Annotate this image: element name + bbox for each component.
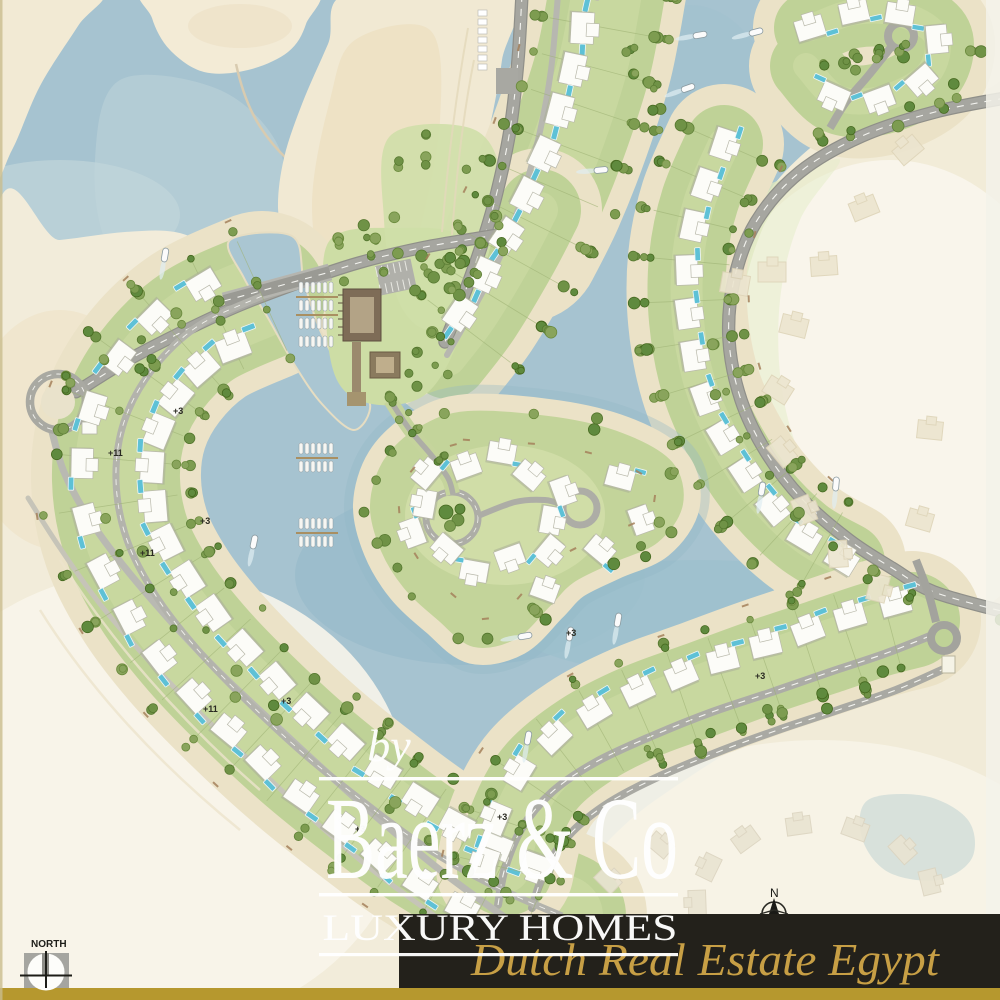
svg-text:NORTH: NORTH	[31, 939, 67, 950]
svg-text:+3: +3	[566, 628, 576, 638]
svg-text:+11: +11	[140, 548, 155, 558]
svg-text:by: by	[367, 720, 411, 771]
svg-text:+11: +11	[203, 704, 218, 714]
svg-text:N: N	[770, 886, 779, 900]
svg-text:+3: +3	[755, 671, 765, 681]
svg-text:+3: +3	[281, 696, 291, 706]
svg-text:+3: +3	[200, 516, 210, 526]
svg-text:+3: +3	[173, 406, 183, 416]
svg-text:LUXURY HOMES: LUXURY HOMES	[323, 908, 678, 949]
svg-text:+11: +11	[108, 448, 123, 458]
svg-text:Baerz & Co: Baerz & Co	[326, 773, 678, 904]
